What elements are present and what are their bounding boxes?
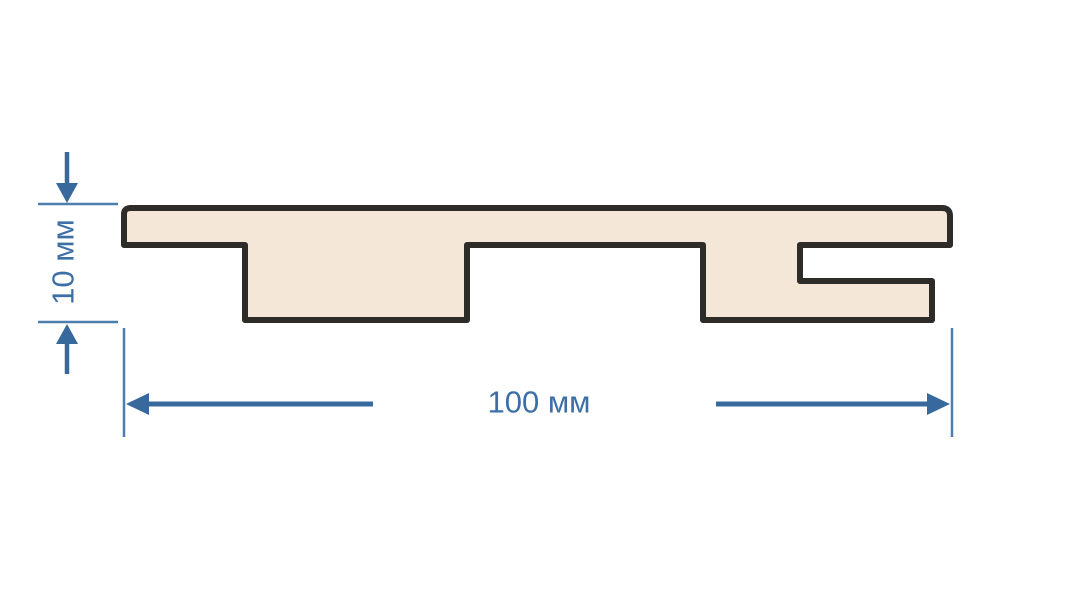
height-dimension-label: 10 мм <box>48 219 79 305</box>
arrow-up-icon <box>56 324 78 374</box>
diagram-canvas: 10 мм 100 мм <box>0 0 1066 594</box>
profile-diagram <box>0 0 1066 594</box>
arrow-down-icon <box>56 152 78 203</box>
width-dimension <box>124 328 952 437</box>
arrow-right-icon <box>716 393 950 415</box>
arrow-left-icon <box>126 393 373 415</box>
profile-shape <box>124 208 950 320</box>
width-dimension-label: 100 мм <box>488 387 591 418</box>
